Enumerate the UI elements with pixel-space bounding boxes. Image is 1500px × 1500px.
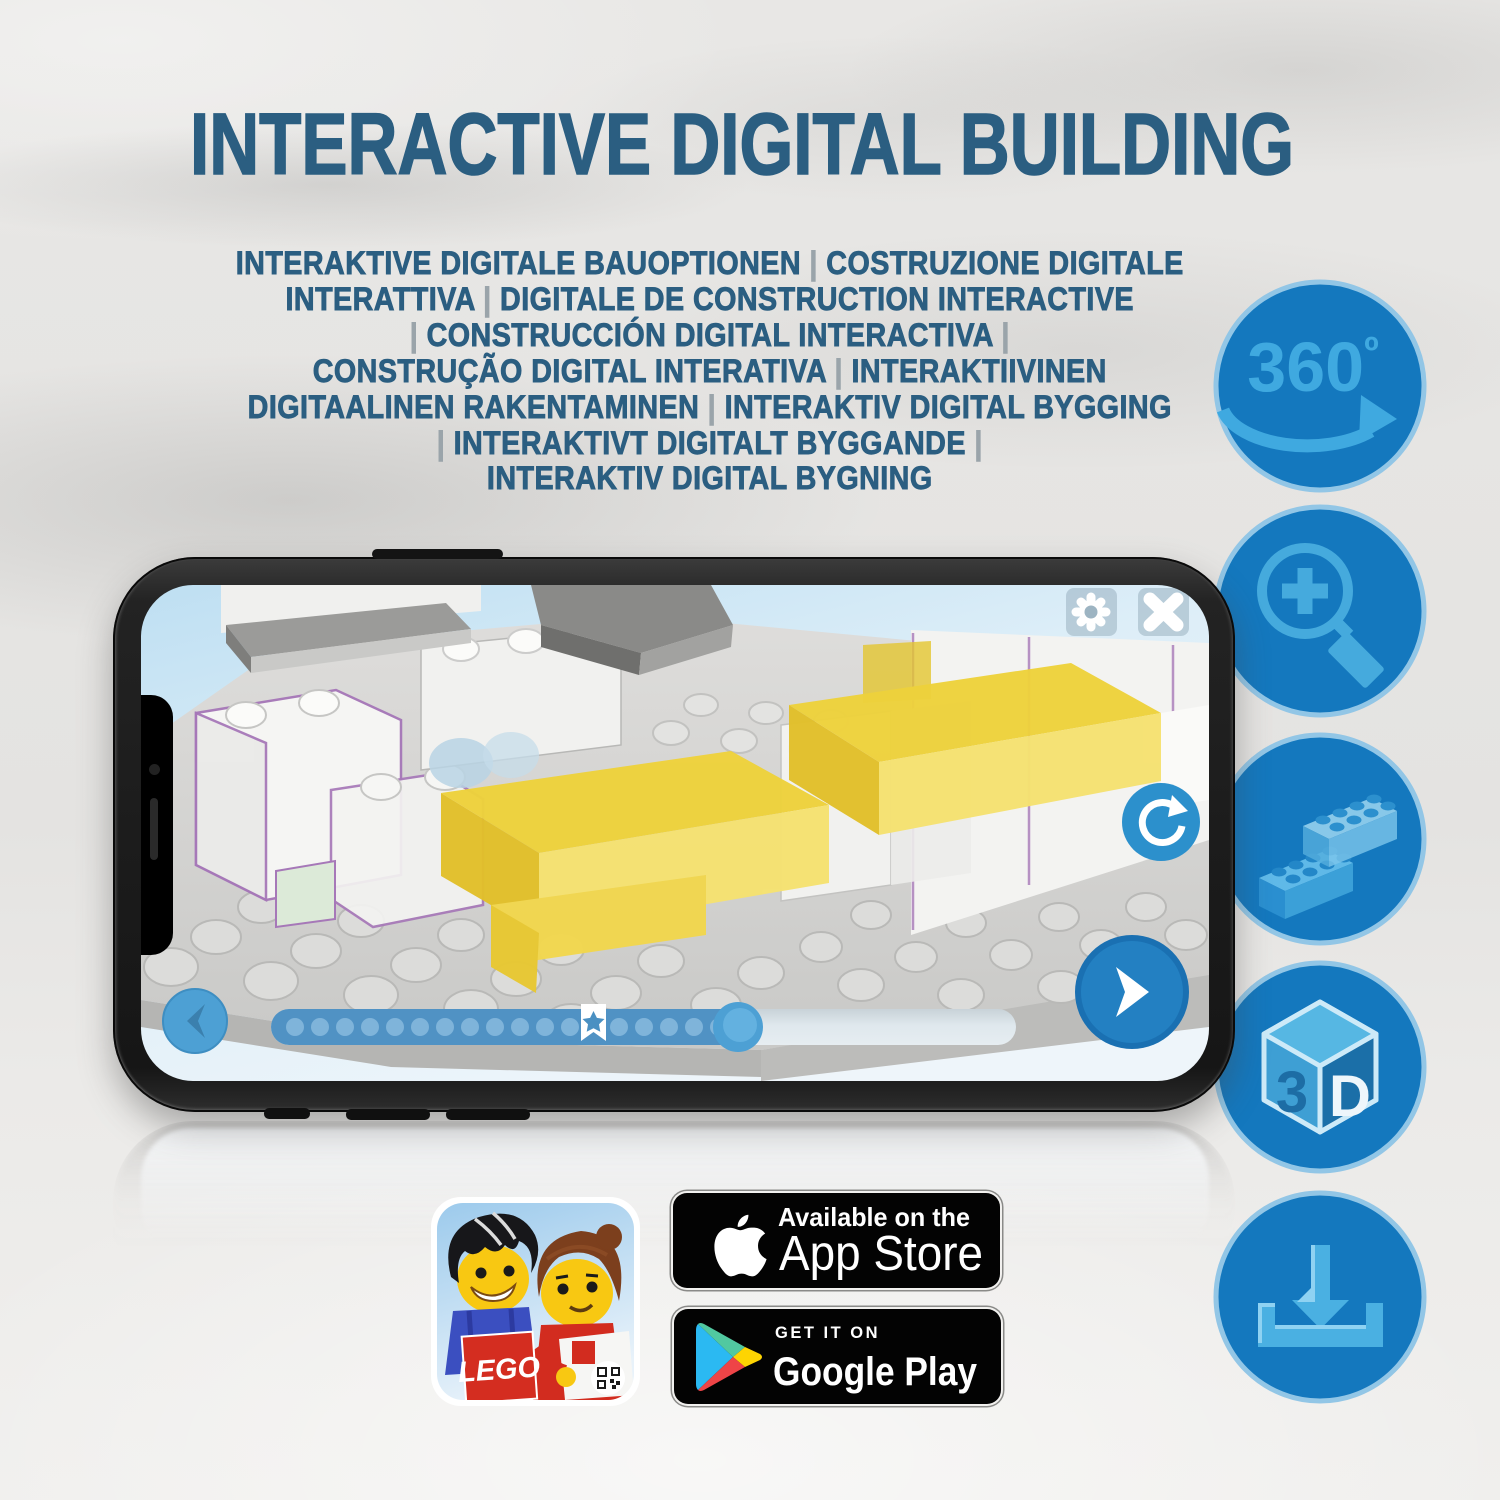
svg-text:Google Play: Google Play xyxy=(773,1350,978,1394)
svg-text:3: 3 xyxy=(1276,1060,1308,1125)
svg-text:App Store: App Store xyxy=(779,1227,983,1281)
svg-text:LEGO: LEGO xyxy=(457,1351,542,1389)
svg-text:360º: 360º xyxy=(1247,328,1378,406)
svg-text:GET IT ON: GET IT ON xyxy=(775,1324,880,1342)
svg-text:D: D xyxy=(1329,1064,1371,1129)
